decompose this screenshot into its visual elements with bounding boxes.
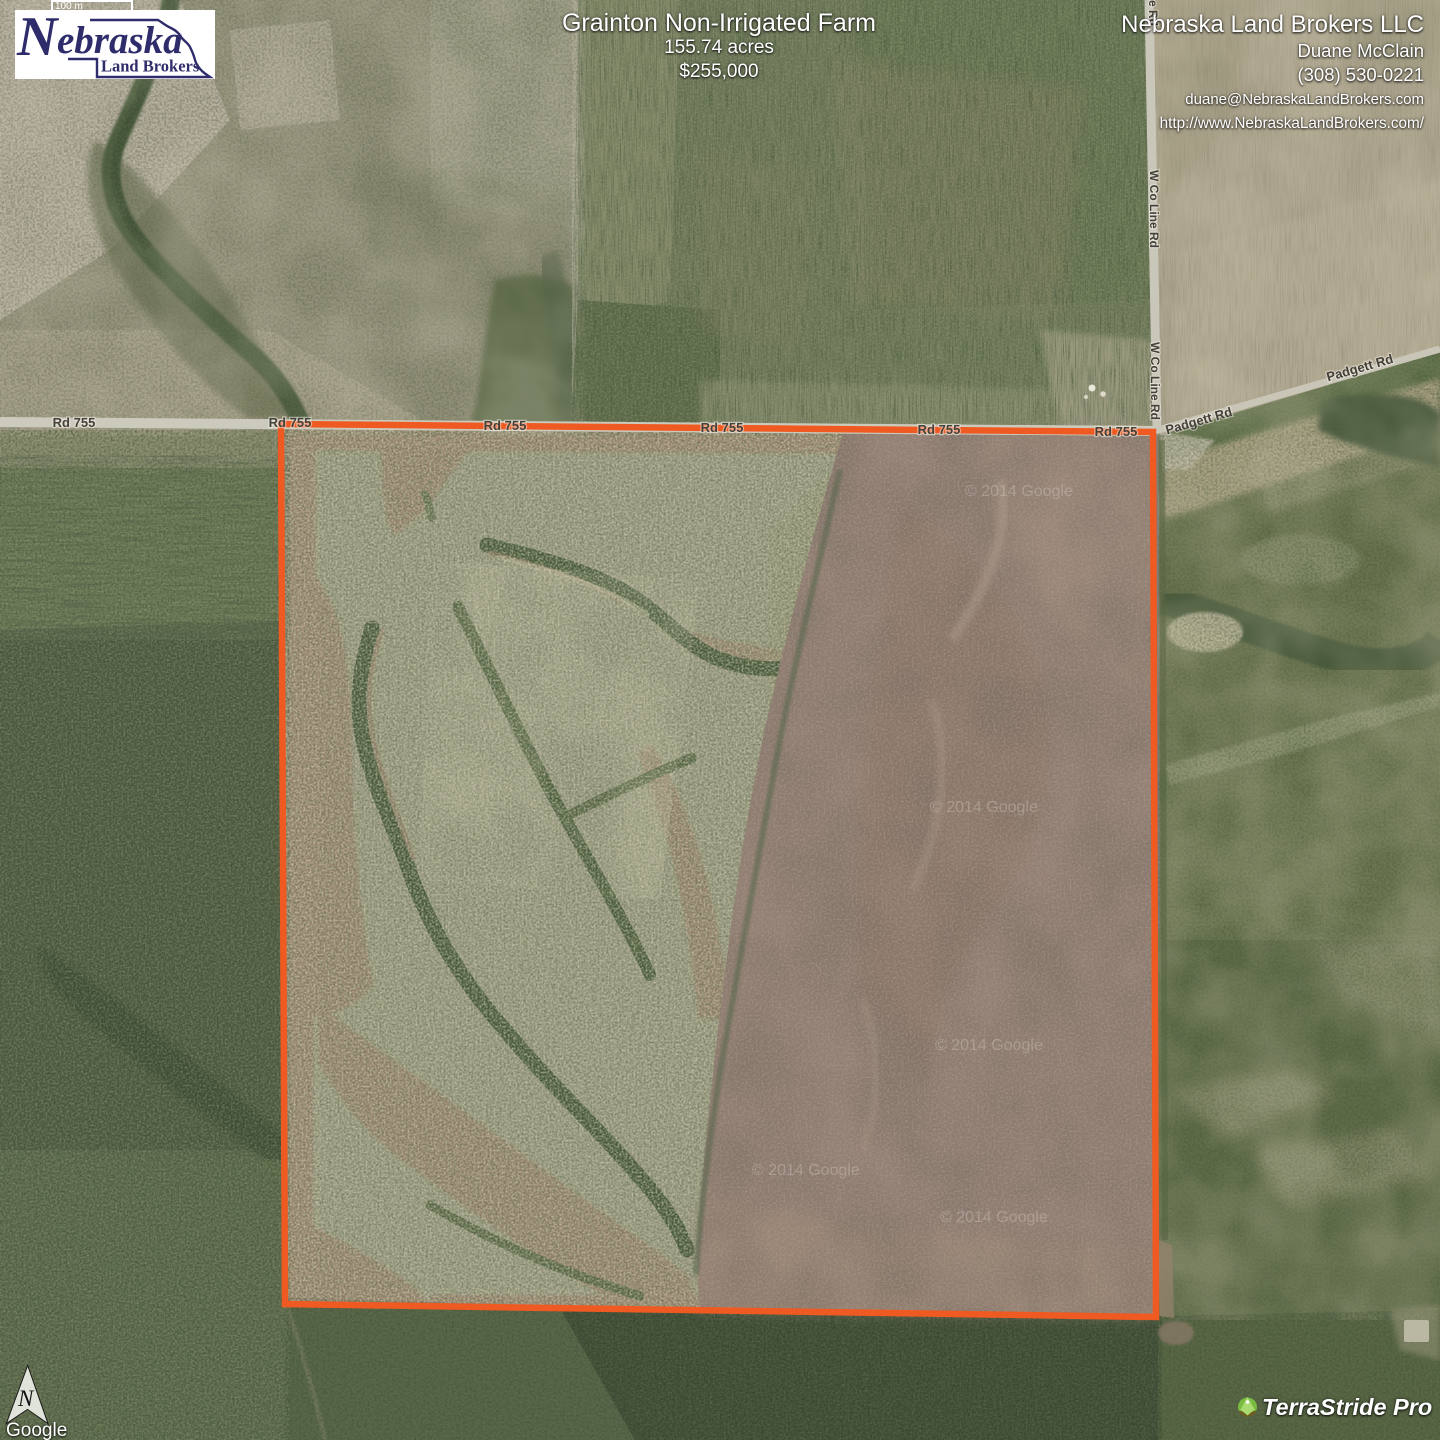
svg-text:duane@NebraskaLandBrokers.com: duane@NebraskaLandBrokers.com	[1185, 91, 1424, 108]
svg-text:$255,000: $255,000	[679, 61, 758, 82]
svg-text:Land Brokers: Land Brokers	[101, 57, 200, 76]
svg-text:http://www.NebraskaLandBrokers: http://www.NebraskaLandBrokers.com/	[1160, 115, 1425, 132]
svg-text:© 2014 Google: © 2014 Google	[752, 1162, 860, 1179]
svg-text:© 2014 Google: © 2014 Google	[940, 1209, 1048, 1226]
svg-text:Rd 755: Rd 755	[269, 415, 312, 430]
svg-text:W Co Line Rd: W Co Line Rd	[1147, 170, 1161, 248]
svg-text:Google: Google	[6, 1420, 67, 1440]
svg-text:© 2014 Google: © 2014 Google	[935, 1037, 1043, 1054]
svg-text:Grainton Non-Irrigated Farm: Grainton Non-Irrigated Farm	[562, 9, 876, 37]
svg-text:N: N	[16, 6, 60, 68]
svg-text:Rd 755: Rd 755	[1095, 424, 1138, 439]
svg-text:(308) 530-0221: (308) 530-0221	[1297, 64, 1424, 85]
svg-text:Rd 755: Rd 755	[918, 422, 961, 437]
svg-text:W Co Line Rd: W Co Line Rd	[1148, 342, 1162, 420]
svg-text:155.74 acres: 155.74 acres	[664, 37, 774, 58]
svg-text:© 2014 Google: © 2014 Google	[965, 483, 1073, 500]
svg-text:N: N	[17, 1386, 35, 1411]
svg-text:Rd 755: Rd 755	[701, 420, 744, 435]
svg-text:TerraStride Pro: TerraStride Pro	[1262, 1394, 1432, 1420]
svg-text:© 2014 Google: © 2014 Google	[930, 799, 1038, 816]
svg-text:Rd 755: Rd 755	[53, 415, 96, 430]
svg-text:Duane McClain: Duane McClain	[1298, 40, 1424, 61]
svg-text:Rd 755: Rd 755	[484, 418, 527, 433]
svg-text:Nebraska Land Brokers LLC: Nebraska Land Brokers LLC	[1121, 11, 1424, 38]
